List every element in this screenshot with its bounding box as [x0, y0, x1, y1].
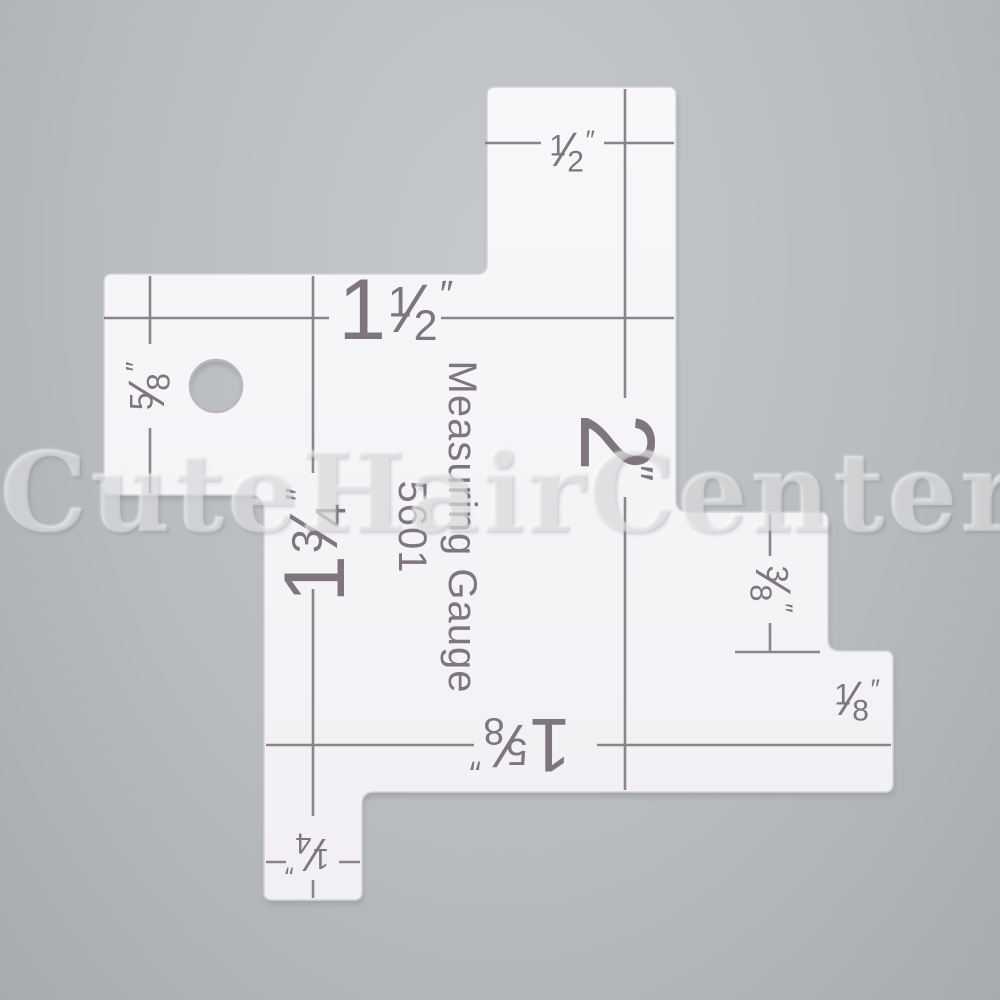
photo-scene: 1⁄2″ 11⁄2″ 5⁄8″ 2″ 13⁄4″ 3⁄8″ 1⁄8″ 15⁄8″…	[0, 0, 1000, 1000]
inch-mark: ″	[286, 850, 294, 878]
inch-mark: ″	[120, 363, 151, 372]
gauge-graphic	[0, 0, 1000, 1000]
measure-label-three-eighths-inch: 3⁄8″	[740, 564, 802, 611]
inch-mark: ″	[471, 739, 482, 776]
product-branding: Measuring Gauge 5601	[387, 361, 487, 694]
label-whole: 1	[529, 702, 571, 787]
label-fraction: 3⁄8	[737, 566, 806, 602]
inch-mark: ″	[440, 274, 452, 316]
gauge-hole	[190, 360, 242, 412]
measure-label-five-eighths-inch: 5⁄8″	[115, 363, 179, 412]
measure-label-one-eighth-inch: 1⁄8″	[833, 670, 879, 730]
measure-label-quarter-inch: 1⁄4″	[286, 824, 330, 882]
label-whole: 1	[267, 555, 363, 603]
inch-mark: ″	[586, 125, 594, 155]
measure-label-one-three-quarters-inch: 13⁄4″	[272, 489, 358, 602]
measure-label-two-inch: 2″	[564, 413, 670, 480]
measure-label-one-five-eighths-inch: 15⁄8″	[471, 706, 571, 782]
label-fraction: 5⁄8	[111, 373, 183, 410]
label-fraction: 5⁄8	[483, 702, 527, 787]
label-fraction: 1⁄8	[834, 666, 869, 733]
measure-label-one-and-half-inch: 11⁄2″	[338, 267, 451, 353]
label-whole: 1	[338, 262, 386, 358]
label-fraction: 1⁄2	[388, 262, 438, 358]
inch-mark: ″	[611, 465, 663, 480]
label-fraction: 1⁄2	[549, 117, 584, 184]
inch-mark: ″	[768, 603, 799, 612]
label-fraction: 1⁄4	[295, 821, 329, 886]
measure-label-half-inch: 1⁄2″	[548, 121, 594, 181]
product-model: 5601	[387, 361, 437, 694]
label-whole: 2	[558, 413, 676, 472]
inch-mark: ″	[279, 489, 321, 501]
inch-mark: ″	[871, 674, 879, 704]
product-title: Measuring Gauge	[437, 361, 487, 694]
label-fraction: 3⁄4	[267, 503, 363, 553]
